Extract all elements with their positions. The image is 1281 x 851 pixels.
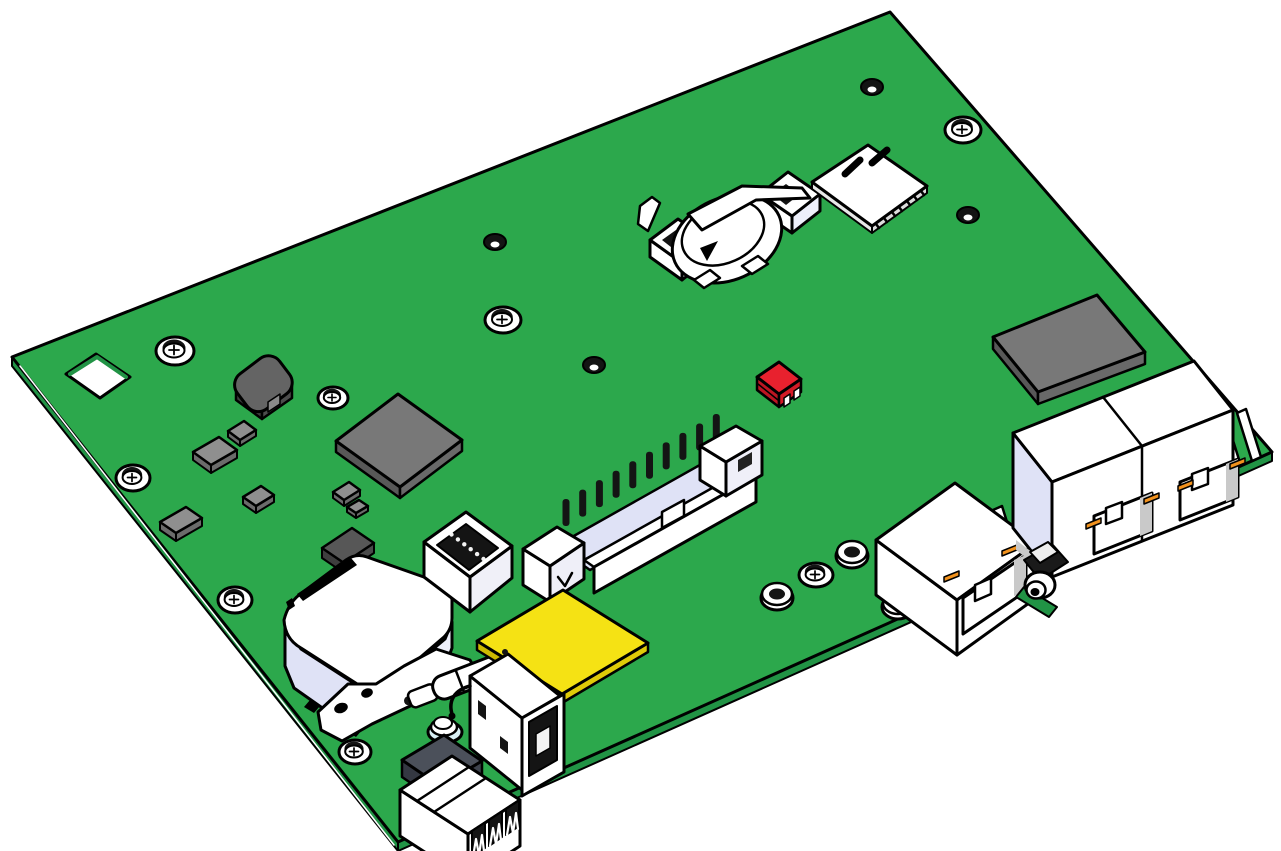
mounting-hole	[116, 465, 150, 491]
via	[583, 357, 605, 373]
via	[484, 234, 506, 250]
cad-screenshot	[0, 0, 1281, 851]
pcb-assembly-render	[0, 0, 1281, 851]
via	[957, 207, 979, 223]
connector-pin	[1031, 588, 1040, 596]
mounting-hole	[156, 337, 194, 365]
mounting-hole	[218, 587, 252, 613]
mounting-hole	[485, 307, 521, 333]
mounting-hole	[945, 117, 981, 143]
standoff-hole	[836, 541, 868, 568]
mounting-hole	[339, 740, 371, 764]
via	[861, 79, 883, 95]
standoff-hole	[761, 583, 793, 610]
mounting-hole	[799, 563, 833, 587]
mounting-hole	[318, 387, 348, 409]
